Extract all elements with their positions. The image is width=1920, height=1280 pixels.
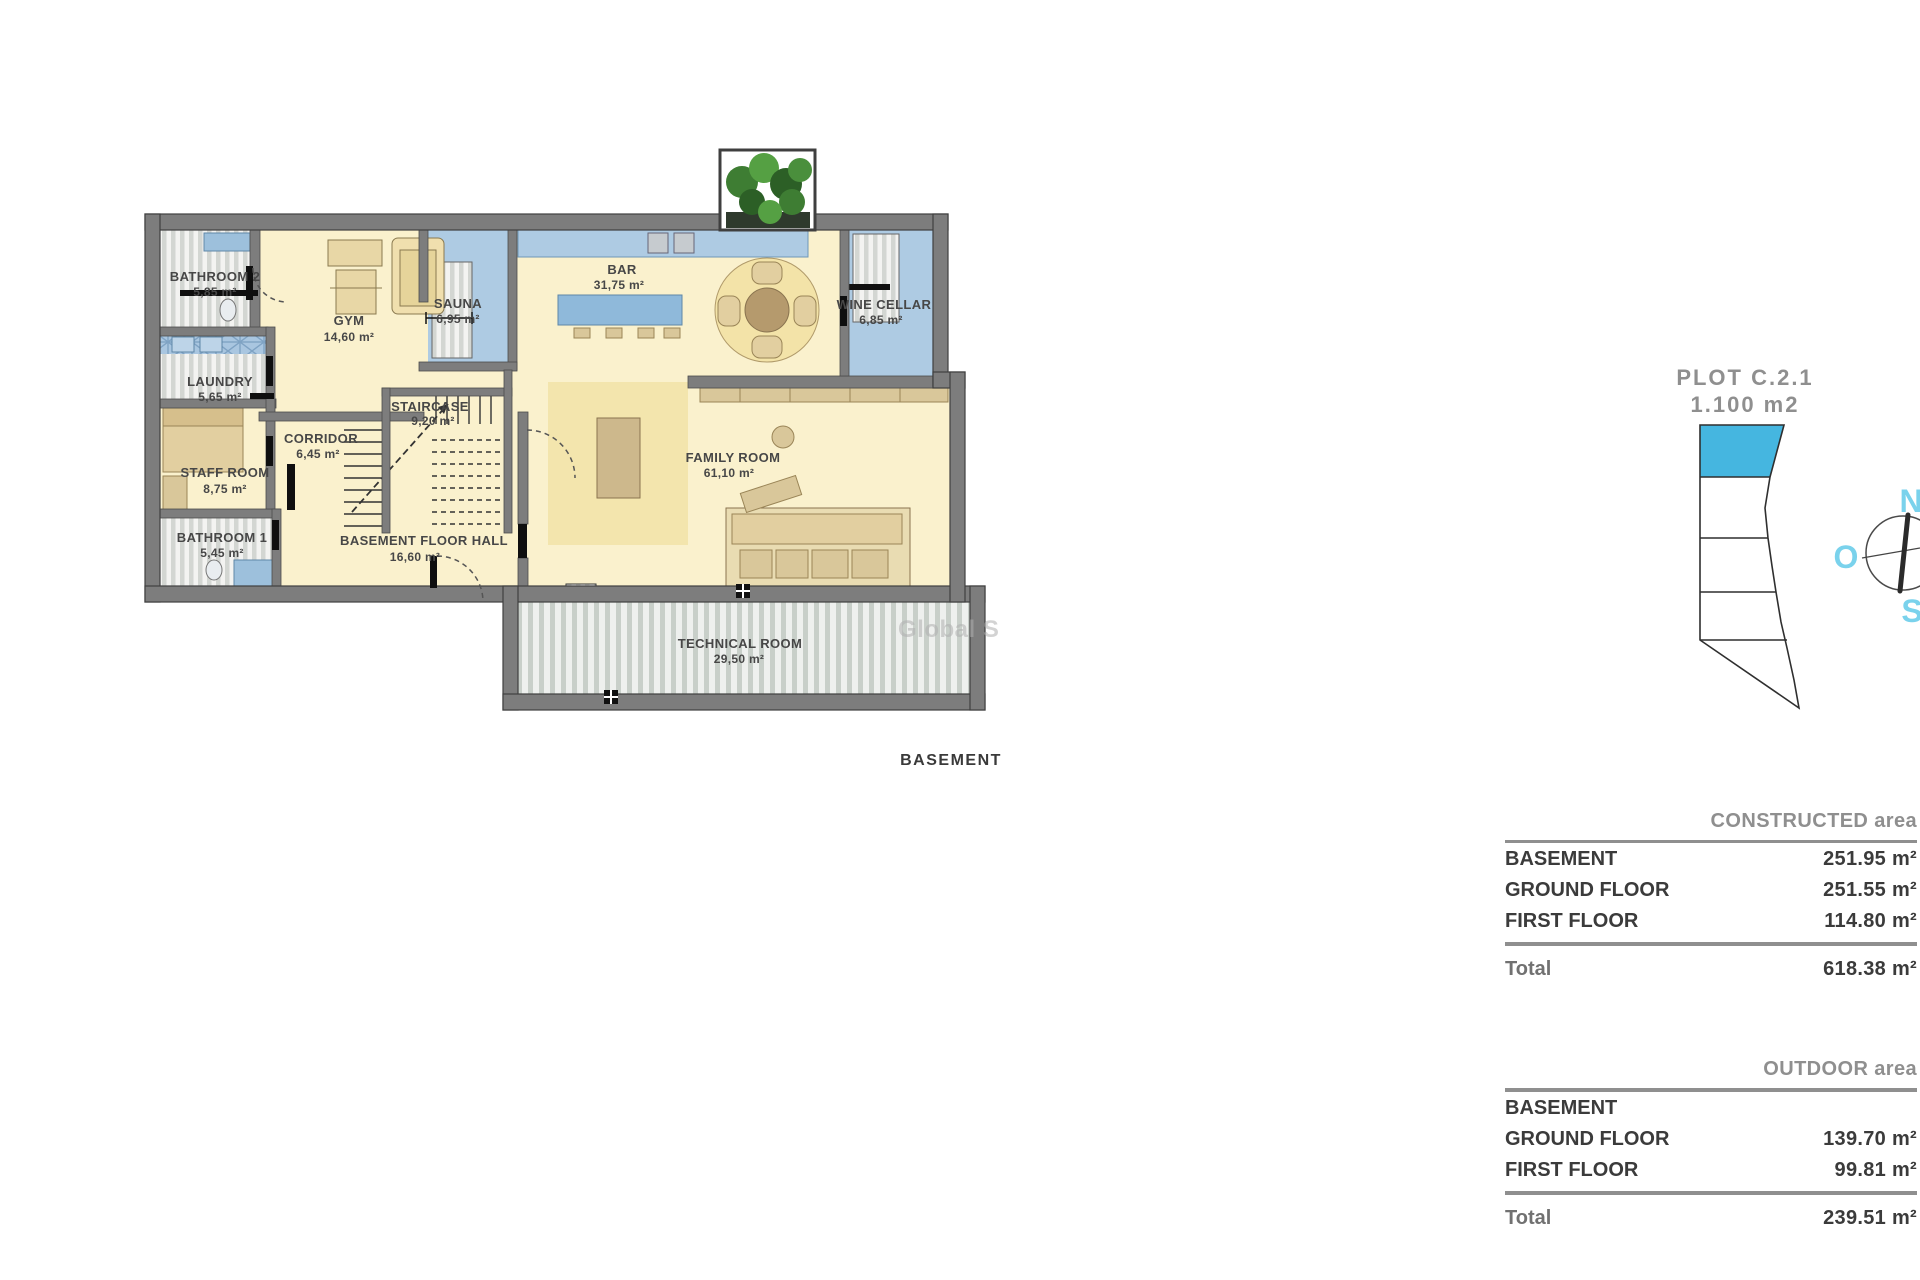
room-area-technical-room: 29,50 m² [714, 652, 764, 666]
room-label-staircase: STAIRCASE [391, 399, 469, 414]
room-label-bathroom2: BATHROOM 2 [170, 269, 260, 284]
room-area-laundry: 5,65 m² [198, 390, 241, 404]
total-label: Total [1505, 954, 1551, 984]
table-total-row: Total 239.51 m² [1505, 1203, 1917, 1233]
row-label: GROUND FLOOR [1505, 875, 1669, 905]
bathroom2-sink [204, 233, 250, 251]
room-label-gym: GYM [334, 313, 365, 328]
table-row: BASEMENT 251.95 m² [1505, 844, 1917, 874]
room-area-staff-room: 8,75 m² [203, 482, 246, 496]
room-area-bathroom1: 5,45 m² [200, 546, 243, 560]
row-label: FIRST FLOOR [1505, 1155, 1638, 1185]
row-value: 251.95 m² [1823, 844, 1917, 874]
room-area-basement-hall: 16,60 m² [390, 550, 440, 564]
total-value: 618.38 m² [1823, 954, 1917, 984]
room-area-sauna: 6,95 m² [436, 312, 479, 326]
plot-title-block: PLOT C.2.1 1.100 m2 [1630, 364, 1860, 418]
room-area-wine-cellar: 6,85 m² [859, 313, 902, 327]
room-label-bathroom1: BATHROOM 1 [177, 530, 267, 545]
plot-shape [1700, 425, 1799, 708]
row-value: 139.70 m² [1823, 1124, 1917, 1154]
room-area-bar: 31,75 m² [594, 278, 644, 292]
table-row: FIRST FLOOR 99.81 m² [1505, 1155, 1917, 1185]
rule [1505, 840, 1917, 843]
lamp [772, 426, 794, 448]
total-value: 239.51 m² [1823, 1203, 1917, 1233]
room-area-staircase: 9,20 m² [411, 414, 454, 428]
table-row: FIRST FLOOR 114.80 m² [1505, 906, 1917, 936]
plan-caption: BASEMENT [886, 752, 1016, 770]
room-area-gym: 14,60 m² [324, 330, 374, 344]
room-label-sauna: SAUNA [434, 296, 482, 311]
row-label: FIRST FLOOR [1505, 906, 1638, 936]
row-value: 99.81 m² [1835, 1155, 1917, 1185]
outdoor-table-header: OUTDOOR area [1505, 1056, 1917, 1082]
plot-diagram: N O S [1650, 415, 1920, 725]
constructed-table-header: CONSTRUCTED area [1505, 808, 1917, 834]
room-label-technical-room: TECHNICAL ROOM [678, 636, 803, 651]
floor-plan: BATHROOM 2 5,85 m² GYM 14,60 m² SAUNA 6,… [0, 0, 1050, 800]
table-row: GROUND FLOOR 251.55 m² [1505, 875, 1917, 905]
room-label-wine-cellar: WINE CELLAR [837, 297, 932, 312]
plant [720, 150, 815, 230]
plot-area: 1.100 m2 [1630, 391, 1860, 418]
bathroom1-toilet [206, 560, 222, 580]
room-area-corridor: 6,45 m² [296, 447, 339, 461]
gym-machine [328, 240, 382, 266]
total-label: Total [1505, 1203, 1551, 1233]
compass-north-label: N [1899, 483, 1920, 519]
room-label-bar: BAR [607, 262, 637, 277]
table-total-row: Total 618.38 m² [1505, 954, 1917, 984]
rule [1505, 1088, 1917, 1092]
bar-counter [558, 295, 682, 325]
page: BATHROOM 2 5,85 m² GYM 14,60 m² SAUNA 6,… [0, 0, 1920, 1280]
plot-title: PLOT C.2.1 [1630, 364, 1860, 391]
compass: N O S [1834, 483, 1920, 629]
room-label-staff-room: STAFF ROOM [181, 465, 270, 480]
bathroom2-toilet [220, 299, 236, 321]
table-row: BASEMENT [1505, 1093, 1917, 1123]
compass-south-label: S [1901, 593, 1920, 629]
row-value: 251.55 m² [1823, 875, 1917, 905]
room-area-family-room: 61,10 m² [704, 466, 754, 480]
dining-table [715, 258, 819, 362]
constructed-area-table: CONSTRUCTED area BASEMENT 251.95 m² GROU… [1505, 808, 1917, 984]
row-label: BASEMENT [1505, 1093, 1617, 1123]
rule [1505, 1191, 1917, 1195]
sideboard [700, 388, 948, 402]
room-label-basement-hall: BASEMENT FLOOR HALL [340, 533, 508, 548]
row-label: GROUND FLOOR [1505, 1124, 1669, 1154]
room-label-laundry: LAUNDRY [187, 374, 253, 389]
room-label-corridor: CORRIDOR [284, 431, 358, 446]
watermark: Global S [898, 616, 1058, 644]
row-label: BASEMENT [1505, 844, 1617, 874]
room-area-bathroom2: 5,85 m² [193, 285, 236, 299]
table-row: GROUND FLOOR 139.70 m² [1505, 1124, 1917, 1154]
rule [1505, 942, 1917, 946]
coffee-table [597, 418, 640, 498]
row-value: 114.80 m² [1824, 906, 1917, 936]
compass-west-label: O [1834, 539, 1859, 575]
room-label-family-room: FAMILY ROOM [686, 450, 781, 465]
outdoor-area-table: OUTDOOR area BASEMENT GROUND FLOOR 139.7… [1505, 1056, 1917, 1233]
